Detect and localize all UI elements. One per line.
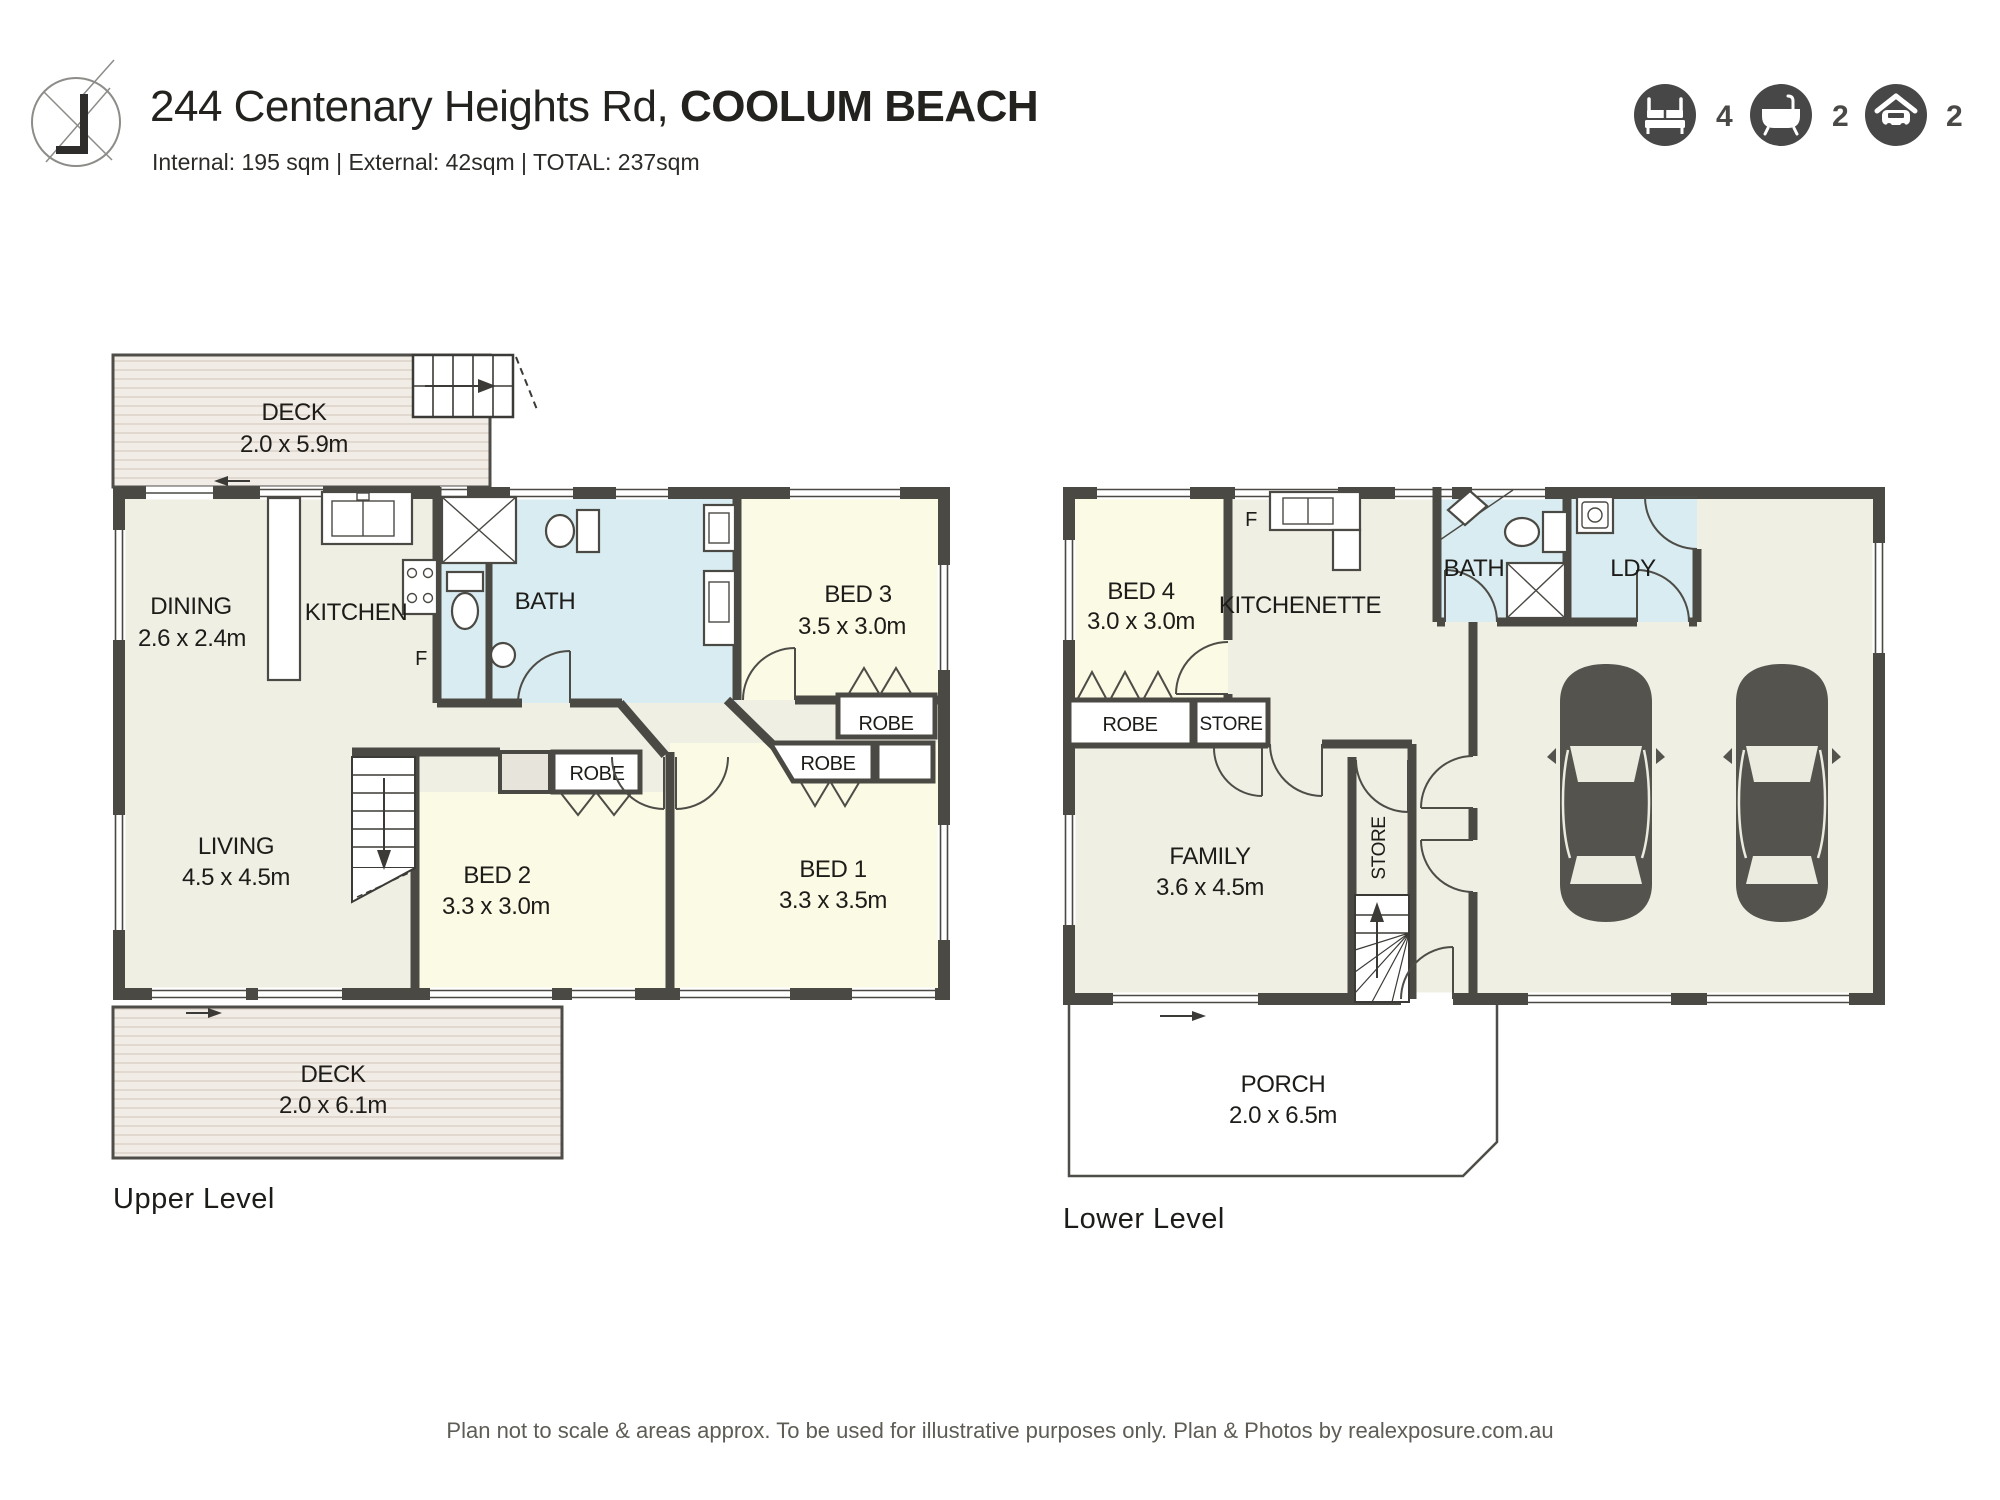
bath-vanity [704,505,735,645]
room-dims-bed4: 3.0 x 3.0m [1087,608,1195,635]
deck-stairs [413,355,538,417]
room-label-bed4: BED 4 [1107,578,1174,605]
disclaimer-text: Plan not to scale & areas approx. To be … [446,1418,1553,1443]
room-label-bath-lower: BATH [1444,555,1505,582]
bed-count: 4 [1716,100,1733,133]
svg-text:STORE: STORE [1199,714,1262,735]
svg-text:ROBE: ROBE [569,763,624,785]
upper-level-title: Upper Level [113,1183,275,1215]
laundry-tub [1577,497,1613,533]
room-label-family: FAMILY [1169,843,1251,870]
bed-icon [1634,84,1696,146]
room-label: DECK [300,1061,365,1088]
svg-text:ROBE: ROBE [858,713,913,735]
lower-level-plan: ROBE STORE STORE [1063,487,1885,1235]
porch: PORCH 2.0 x 6.5m [1069,1005,1497,1176]
room-label-bed3: BED 3 [824,581,891,608]
fridge-label-lower: F [1245,509,1257,531]
car-garage-icon [1865,84,1927,146]
header: 244 Centenary Heights Rd, COOLUM BEACH I… [32,60,1963,175]
svg-text:ROBE: ROBE [1102,714,1157,736]
linen-closet [500,752,550,792]
kitchen-peninsula [268,498,300,680]
car-count: 2 [1946,100,1963,133]
floorplan-page: 244 Centenary Heights Rd, COOLUM BEACH I… [0,0,2000,1500]
lower-level-title: Lower Level [1063,1203,1225,1235]
room-label-kitchen: KITCHEN [305,599,408,626]
svg-text:ROBE: ROBE [800,753,855,775]
car-right [1723,664,1841,922]
shower [442,497,516,563]
room-dims-dining: 2.6 x 2.4m [138,625,246,652]
basin-pedestal [491,643,515,667]
fridge-label: F [415,648,427,670]
room-label-living: LIVING [198,833,274,860]
hall-closet [877,743,933,781]
room-dims-bed1: 3.3 x 3.5m [779,887,887,914]
property-stats: 4 2 2 [1634,84,1963,146]
stove-cooktop [403,560,437,614]
room-label-bath: BATH [515,588,576,615]
svg-text:STORE: STORE [1369,816,1390,879]
area-summary: Internal: 195 sqm | External: 42sqm | TO… [152,149,700,175]
page-title: 244 Centenary Heights Rd, COOLUM BEACH [150,82,1038,131]
deck-bottom: DECK 2.0 x 6.1m [113,1007,562,1158]
room-label-bed1: BED 1 [799,856,866,883]
kitchen-sink [322,492,412,544]
realexposure-floorplan-logo-icon [32,60,120,166]
upper-level-plan: DECK 2.0 x 5.9m DECK 2.0 x 6.1m [113,355,950,1215]
car-left [1547,664,1665,922]
room-dims-porch: 2.0 x 6.5m [1229,1102,1337,1129]
room-dims: 2.0 x 6.1m [279,1092,387,1119]
room-label-porch: PORCH [1241,1071,1326,1098]
address-street: 244 Centenary Heights Rd, [150,82,680,131]
room-dims-bed3: 3.5 x 3.0m [798,613,906,640]
room-label-dining: DINING [150,593,232,620]
room-label-kitchenette: KITCHENETTE [1219,592,1381,619]
lower-stairs [1355,895,1409,1002]
room-dims: 2.0 x 5.9m [240,431,348,458]
room-label-laundry: LDY [1610,555,1656,582]
room-label: DECK [261,399,326,426]
bath-icon [1750,84,1812,146]
room-dims-family: 3.6 x 4.5m [1156,874,1264,901]
room-label-bed2: BED 2 [463,862,530,889]
room-dims-living: 4.5 x 4.5m [182,864,290,891]
bath-count: 2 [1832,100,1849,133]
room-dims-bed2: 3.3 x 3.0m [442,893,550,920]
address-suburb: COOLUM BEACH [680,82,1038,131]
